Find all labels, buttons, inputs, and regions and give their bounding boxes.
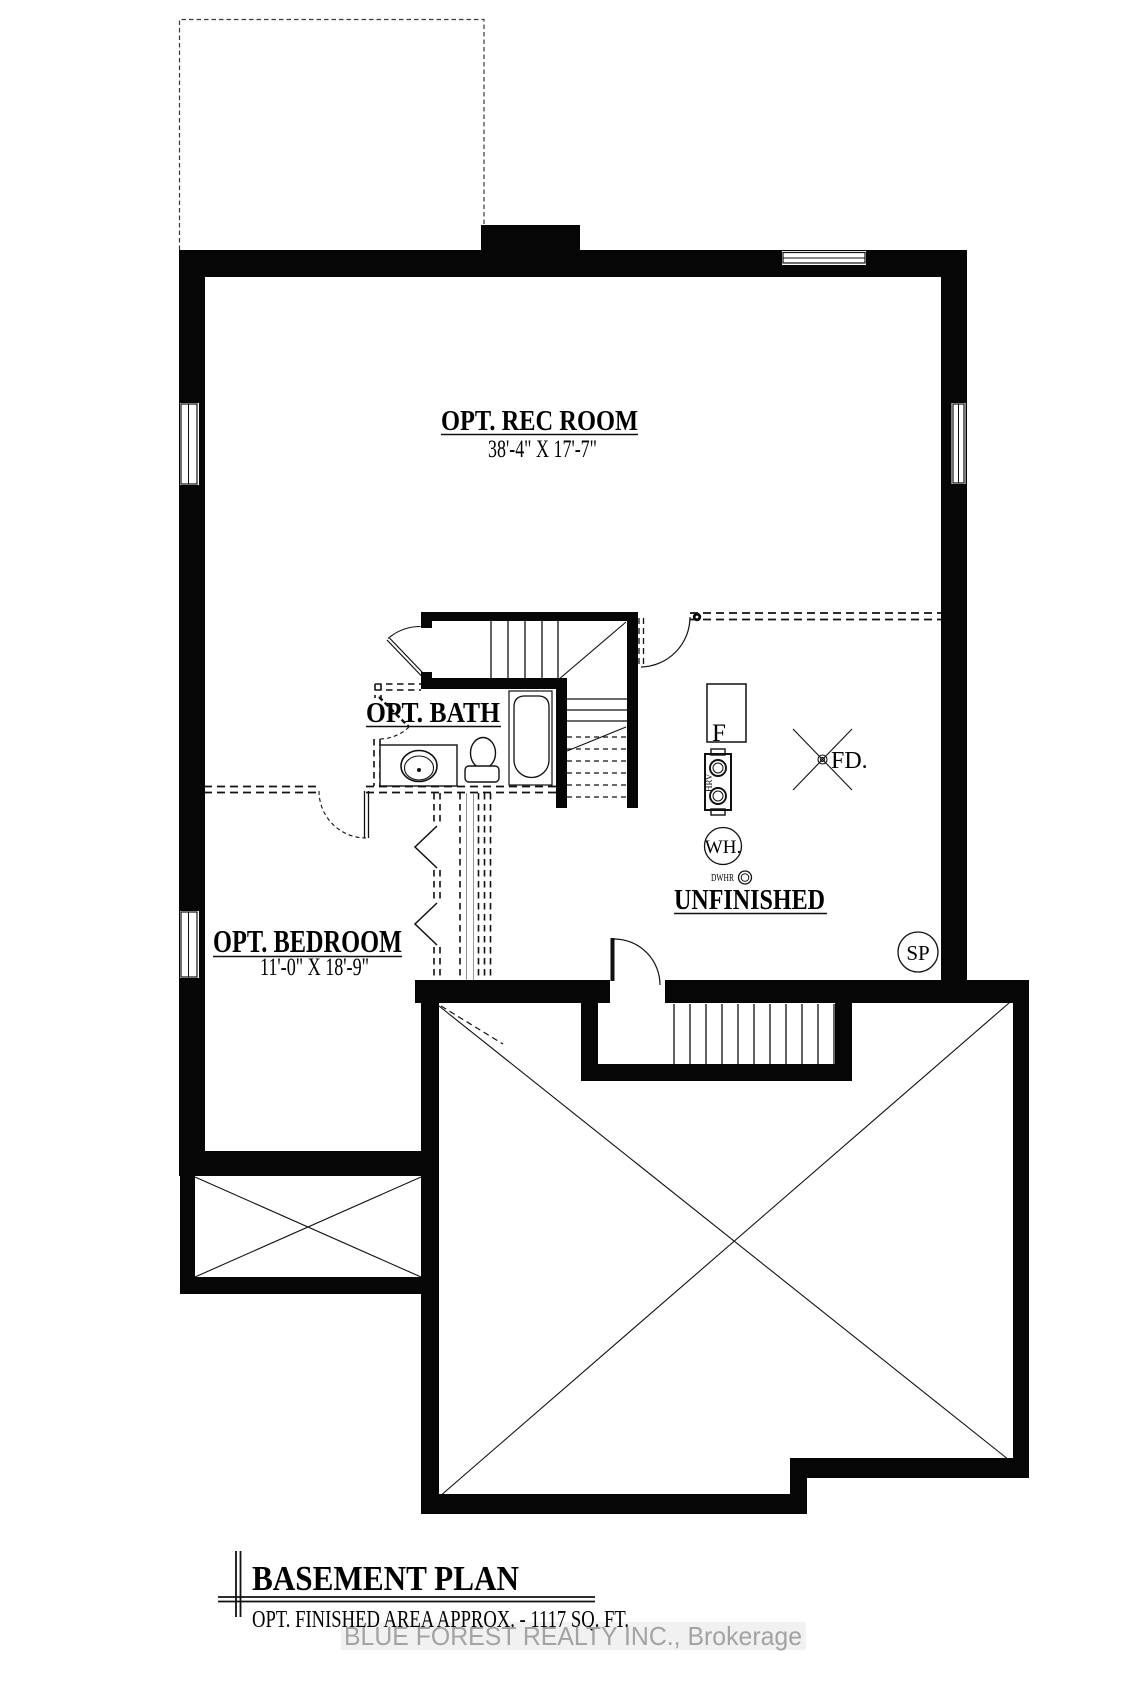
- svg-text:WH.: WH.: [705, 837, 741, 858]
- svg-text:OPT. REC ROOM: OPT. REC ROOM: [441, 405, 638, 437]
- svg-text:11'-0" X 18'-9": 11'-0" X 18'-9": [260, 954, 369, 981]
- svg-text:DWHR: DWHR: [711, 873, 734, 884]
- svg-text:SP: SP: [906, 941, 929, 965]
- svg-text:BLUE FOREST REALTY INC., Broke: BLUE FOREST REALTY INC., Brokerage: [344, 1621, 802, 1651]
- svg-text:UNFINISHED: UNFINISHED: [674, 884, 825, 916]
- svg-text:OPT. BATH: OPT. BATH: [366, 697, 500, 729]
- svg-text:BASEMENT PLAN: BASEMENT PLAN: [252, 1559, 519, 1598]
- svg-text:FD.: FD.: [831, 748, 868, 774]
- svg-text:HRV: HRV: [704, 773, 714, 792]
- svg-text:38'-4" X 17'-7": 38'-4" X 17'-7": [488, 436, 597, 463]
- svg-text:F: F: [712, 720, 726, 747]
